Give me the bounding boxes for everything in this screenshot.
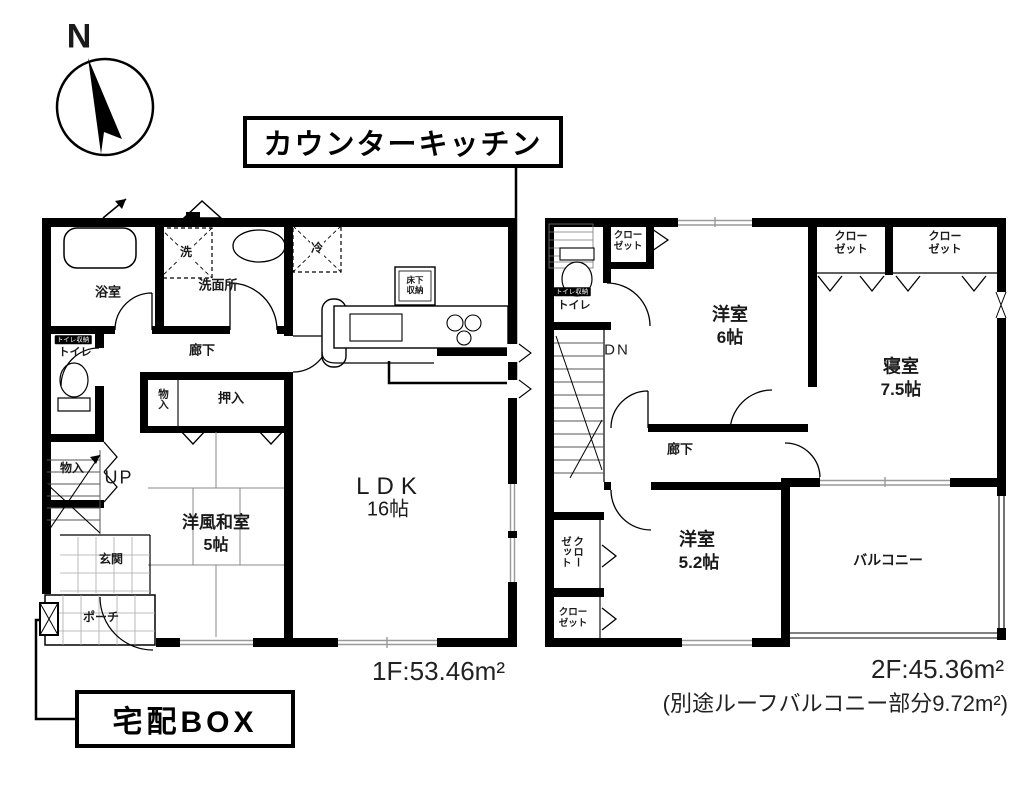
room-label-west-room-52: 洋室 (679, 530, 715, 551)
room-label-storage-small: 物入 (157, 389, 169, 410)
second-floor-area-label: 2F:45.36m² (788, 654, 1004, 685)
room-label-hallway-2f: 廊下 (667, 443, 693, 458)
room-label-bath: 浴室 (95, 286, 121, 301)
second-floor-doors (600, 229, 997, 638)
room-label-porch: ポーチ (83, 611, 119, 625)
kitchen-counter-icon (322, 299, 508, 367)
room-label-bedroom: 寝室 (883, 357, 919, 378)
room-label-west-room-6-size: 6帖 (717, 328, 743, 348)
room-label-entrance: 玄関 (99, 553, 123, 567)
room-label-toilet-2f: トイレ (558, 300, 591, 313)
room-label-ldk: LDK (356, 473, 424, 501)
room-label-hallway-1f: 廊下 (189, 344, 215, 359)
room-label-underfloor-storage: 床下収納 (405, 276, 425, 296)
bathtub-icon (64, 228, 136, 268)
first-floor-area-label: 1F:53.46m² (300, 656, 505, 687)
room-label-west-room-6: 洋室 (712, 305, 748, 326)
room-label-storage-left: 物入 (60, 462, 84, 476)
room-label-balcony: バルコニー (853, 552, 923, 568)
room-label-toilet-1f: トイレ (59, 347, 92, 360)
room-label-ldk-size: 16帖 (367, 499, 409, 522)
toilet-cabinet-tag-2f: トイレ収納 (554, 287, 591, 296)
room-label-oshiire: 押入 (218, 392, 244, 407)
floorplan-page: N カウンターキッチン 宅配BOX 浴室 洗面所 洗 冷 床下収納 トイレ収納 … (0, 0, 1018, 796)
washer-symbol: 洗 (179, 246, 193, 260)
room-label-closet-bedroom-left: クローゼット (834, 230, 869, 255)
room-label-japanese-room-size: 5帖 (204, 537, 229, 555)
room-label-closet-mid: クローゼット (560, 534, 584, 570)
room-label-washroom: 洗面所 (198, 279, 237, 294)
fridge-symbol: 冷 (310, 242, 324, 256)
counter-kitchen-callout: カウンターキッチン (243, 116, 563, 168)
sink-icon (233, 230, 285, 262)
first-floor-windows (103, 199, 531, 648)
compass-icon (57, 58, 153, 155)
toilet-icon-1f (58, 363, 90, 411)
room-label-west-room-52-size: 5.2帖 (679, 553, 720, 573)
delivery-box-callout: 宅配BOX (75, 690, 295, 748)
room-label-bedroom-size: 7.5帖 (881, 380, 922, 400)
stairs-down-icon (554, 330, 604, 482)
toilet-icon-2f (549, 224, 594, 296)
stairs-down-label: DN (604, 341, 630, 358)
stairs-up-label: UP (104, 468, 133, 489)
second-floor-walls (545, 218, 1006, 647)
toilet-cabinet-tag-1f: トイレ収納 (55, 335, 92, 344)
room-label-closet-bedroom-right: クローゼット (928, 230, 963, 255)
room-label-japanese-room: 洋風和室 (182, 513, 250, 533)
compass-north-label: N (67, 17, 92, 56)
second-floor-area-note: (別途ルーフバルコニー部分9.72m²) (530, 686, 1008, 718)
room-label-closet-bottom: クローゼット (558, 608, 588, 630)
room-label-closet-by-toilet: クローゼット (613, 231, 643, 253)
